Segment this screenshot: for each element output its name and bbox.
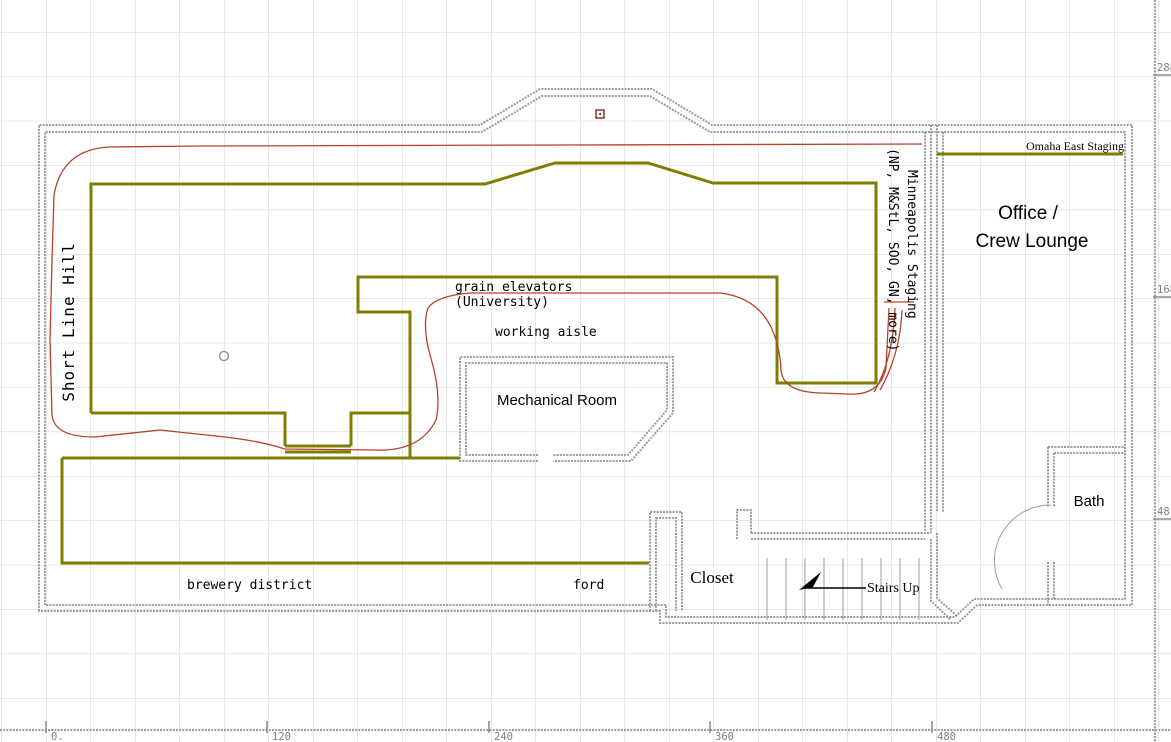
ruler-bottom-label: 0. [51,731,64,742]
label-omaha-east-staging: Omaha East Staging [1026,139,1124,153]
label-minneapolis-staging: Minneapolis Staging [904,170,919,319]
ruler-right-label: 168 [1157,284,1171,296]
label-working-aisle: working aisle [495,325,597,340]
label-office-line1: Office / [998,203,1059,224]
grid-lines [0,0,1171,742]
label-bath: Bath [1074,493,1105,510]
label-brewery-district: brewery district [187,578,312,593]
label-stairs-up: Stairs Up [867,581,920,596]
label-mechanical-room: Mechanical Room [497,392,617,409]
label-office-line2: Crew Lounge [975,231,1088,252]
floorplan-drawing[interactable]: 288 168 48. 0. 120 240 360 480 Short Lin… [0,0,1171,742]
label-closet: Closet [690,568,734,587]
label-minneapolis-staging-roads: (NP, M&StL, SOO, GN, more) [885,148,900,352]
label-ford: ford [573,578,604,593]
ruler-bottom-label: 120 [272,731,291,742]
label-grain-elevators: grain elevators [455,280,572,295]
floorplan-canvas[interactable]: 288 168 48. 0. 120 240 360 480 Short Lin… [0,0,1171,742]
ruler-bottom-label: 240 [494,731,513,742]
ruler-bottom-label: 360 [715,731,734,742]
ruler-right-label: 48. [1157,506,1171,518]
ruler-bottom-label: 480 [937,731,956,742]
label-short-line-hill: Short Line Hill [59,242,78,402]
label-grain-elevators-university: (University) [455,295,549,310]
ruler-right-label: 288 [1157,62,1171,74]
